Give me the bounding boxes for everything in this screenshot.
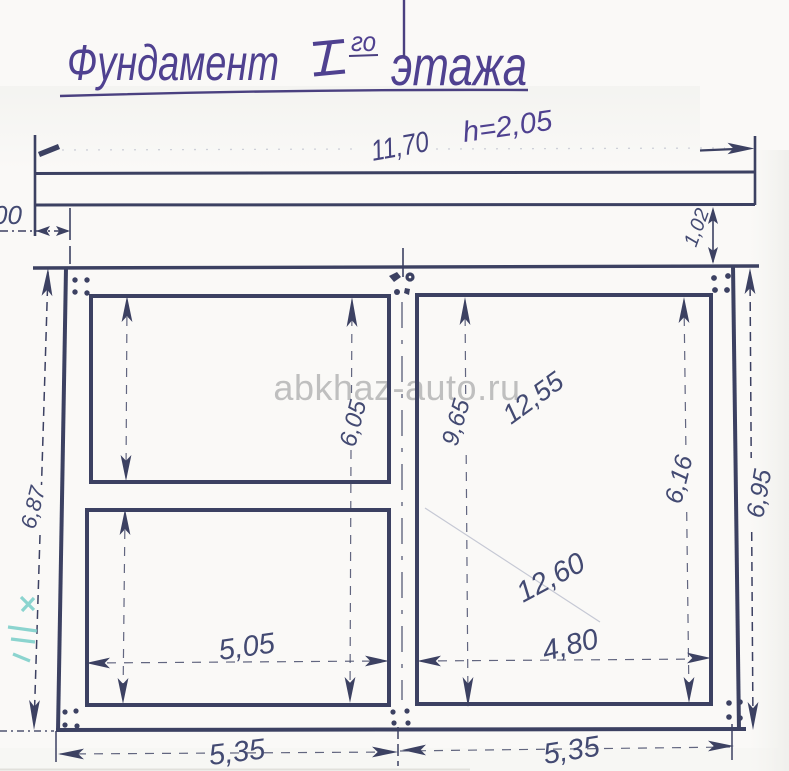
svg-text:Фундамент: Фундамент [67,35,279,91]
svg-text:5,35: 5,35 [207,733,268,771]
svg-text:00: 00 [0,200,22,230]
svg-text:этажа: этажа [391,34,527,97]
svg-text:abkhaz-auto.ru: abkhaz-auto.ru [273,367,520,408]
svg-text:го: го [351,26,376,57]
